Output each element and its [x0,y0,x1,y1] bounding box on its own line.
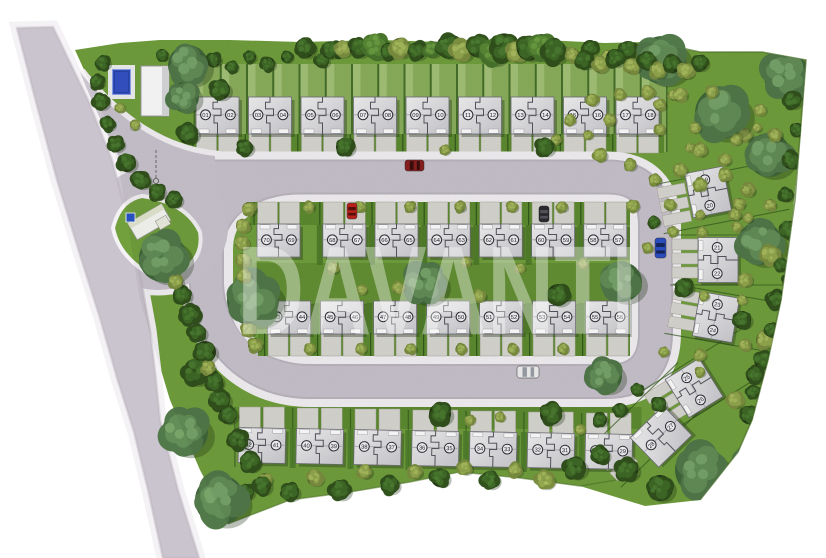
svg-text:DAVANTI: DAVANTI [237,220,637,361]
